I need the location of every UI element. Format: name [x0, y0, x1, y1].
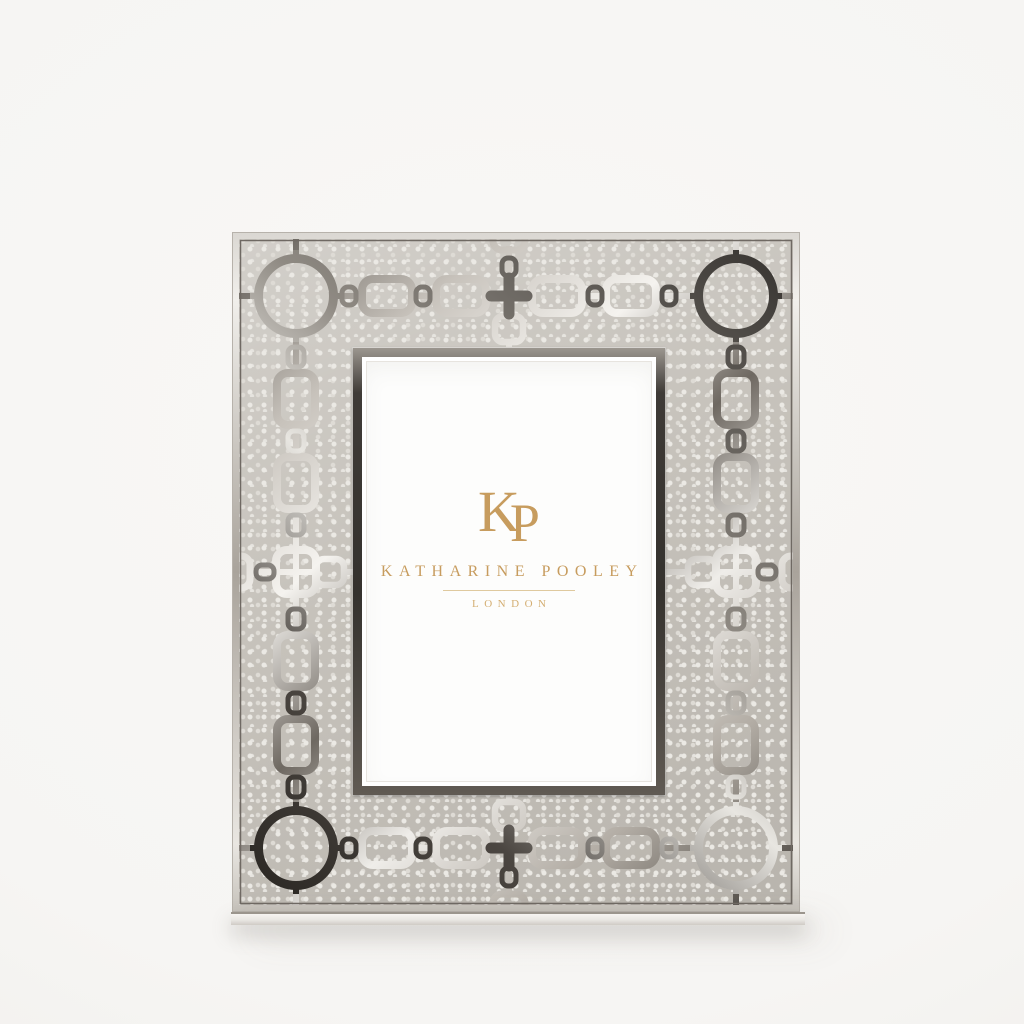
photo-mat: K P KATHARINE POOLEY LONDON — [362, 357, 656, 786]
picture-frame: K P KATHARINE POOLEY LONDON — [232, 232, 800, 912]
brand-name: KATHARINE POOLEY — [374, 563, 643, 581]
brand-logo: K P KATHARINE POOLEY LONDON — [374, 357, 643, 610]
brand-monogram-p: P — [510, 496, 540, 550]
brand-city: LONDON — [467, 598, 552, 610]
frame-bottom-edge — [231, 912, 805, 925]
product-photo: K P KATHARINE POOLEY LONDON — [0, 0, 1024, 1024]
brand-monogram: K P — [478, 483, 540, 553]
brand-divider — [443, 590, 575, 591]
photo-aperture: K P KATHARINE POOLEY LONDON — [353, 348, 665, 795]
